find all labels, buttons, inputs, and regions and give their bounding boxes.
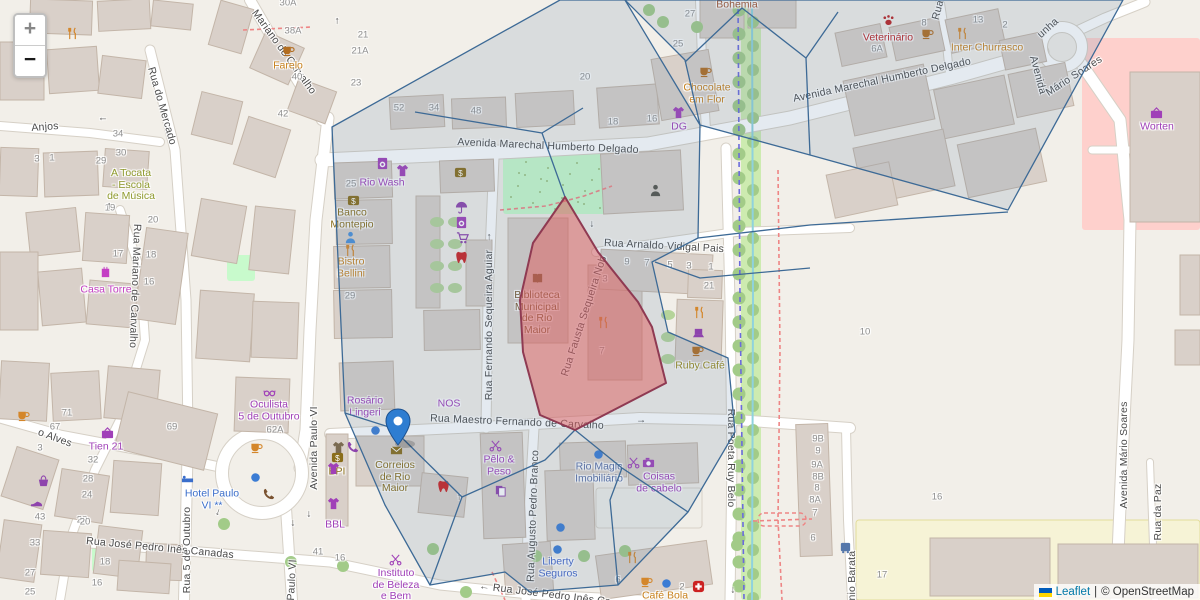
zoom-out-button[interactable]: −: [15, 46, 45, 76]
openstreetmap-link[interactable]: © OpenStreetMap: [1101, 586, 1194, 598]
zoom-in-button[interactable]: +: [15, 15, 45, 46]
map-overlay-layer[interactable]: [0, 0, 1200, 600]
marker-pin-hole: [394, 417, 403, 426]
zoom-control: + −: [13, 13, 47, 78]
attribution-bar: Leaflet | © OpenStreetMap: [1034, 584, 1200, 600]
boundary-line: [698, 212, 1008, 238]
leaflet-link[interactable]: Leaflet: [1056, 586, 1091, 598]
map-viewport[interactable]: $ Avenida Marechal Humberto DelgadoAven: [0, 0, 1200, 600]
ukraine-flag-icon: [1039, 588, 1052, 597]
attribution-separator: |: [1094, 586, 1097, 598]
boundary-line: [655, 262, 810, 278]
